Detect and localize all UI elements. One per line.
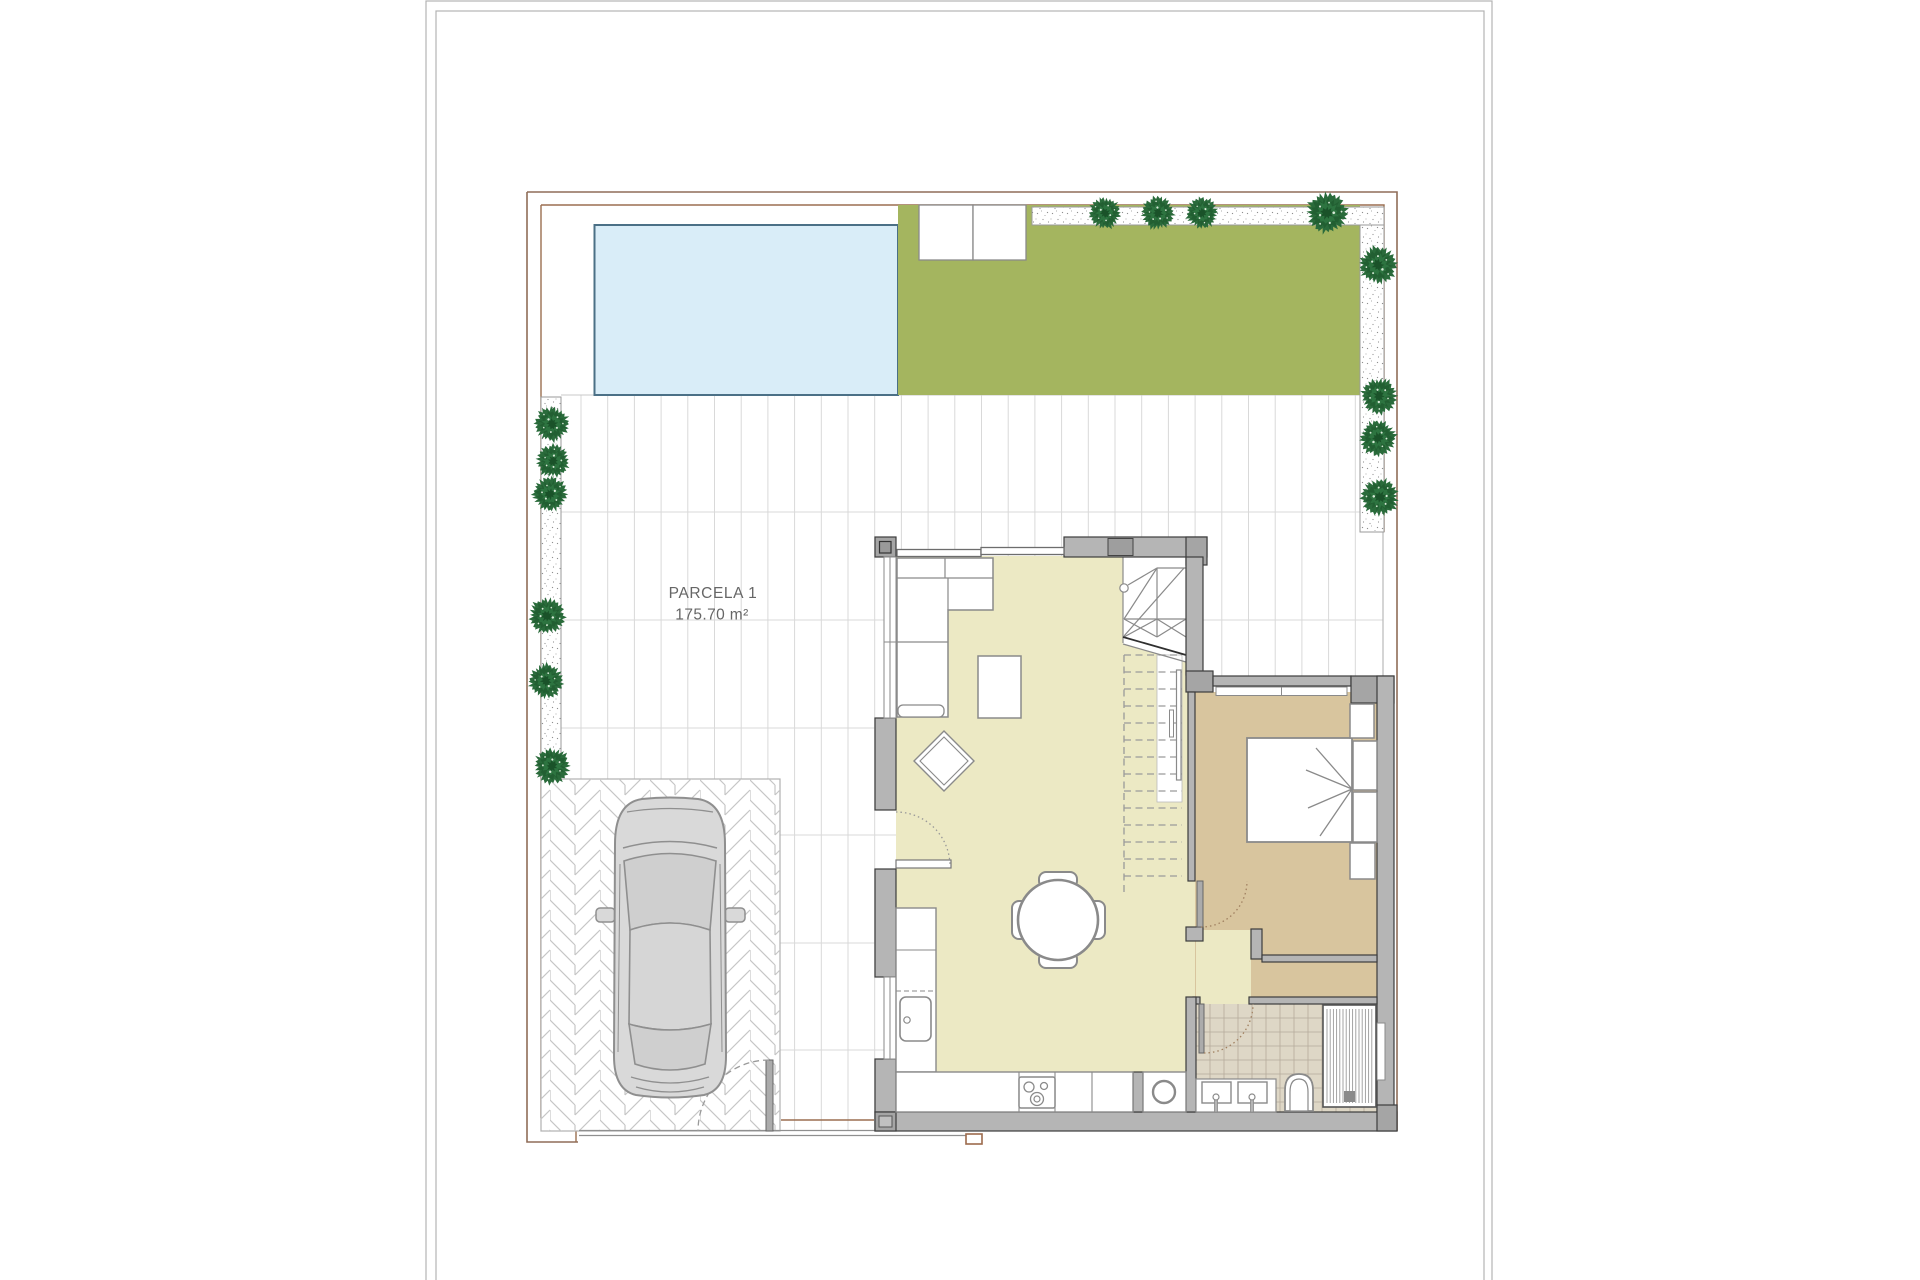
svg-text:PARCELA 1: PARCELA 1: [669, 585, 758, 602]
svg-text:175.70 m²: 175.70 m²: [675, 607, 748, 624]
